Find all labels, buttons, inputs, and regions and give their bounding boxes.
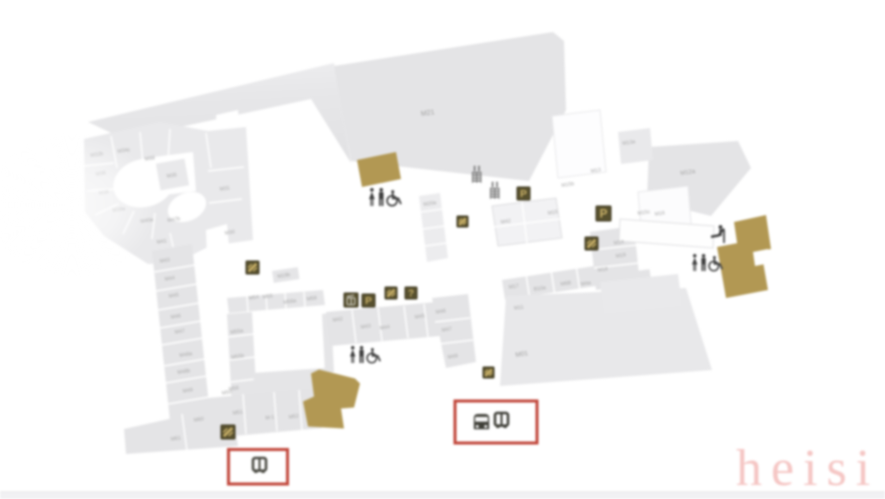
svg-text:M15b: M15b: [561, 181, 575, 189]
svg-text:M13: M13: [590, 167, 601, 174]
svg-text:P: P: [520, 189, 527, 200]
svg-text:P: P: [600, 208, 608, 221]
svg-text:P: P: [365, 296, 372, 307]
svg-text:?: ?: [408, 289, 414, 300]
